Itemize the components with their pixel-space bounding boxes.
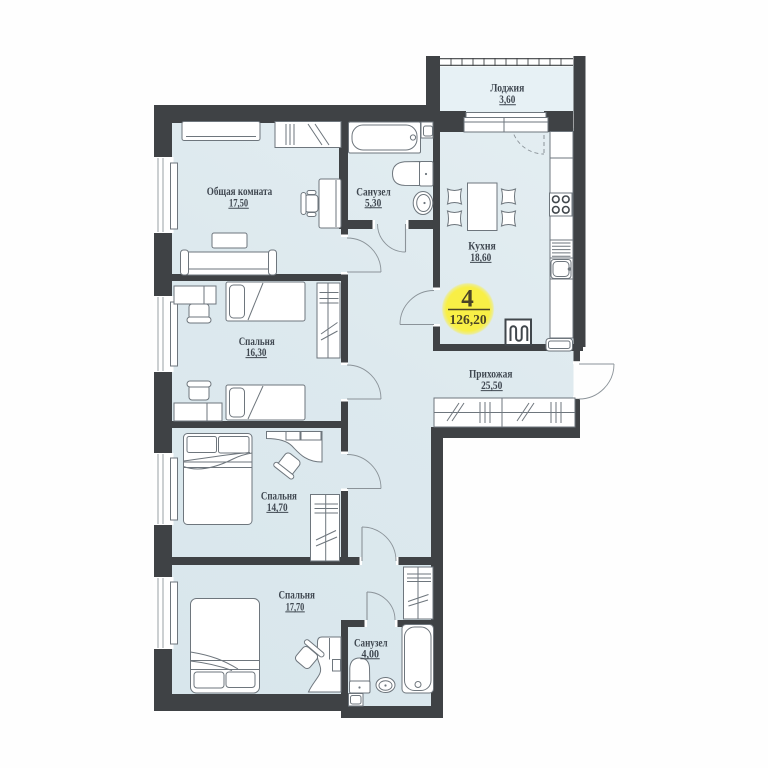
svg-text:Спальня: Спальня bbox=[279, 590, 315, 602]
svg-text:Прихожая: Прихожая bbox=[469, 369, 513, 381]
svg-text:4: 4 bbox=[461, 286, 474, 313]
svg-text:126,20: 126,20 bbox=[449, 312, 486, 327]
svg-text:Спальня: Спальня bbox=[261, 491, 297, 503]
svg-text:Кухня: Кухня bbox=[468, 241, 496, 253]
svg-text:Лоджия: Лоджия bbox=[490, 83, 524, 95]
svg-text:Санузел: Санузел bbox=[354, 637, 388, 649]
svg-text:Общая комната: Общая комната bbox=[207, 186, 273, 198]
